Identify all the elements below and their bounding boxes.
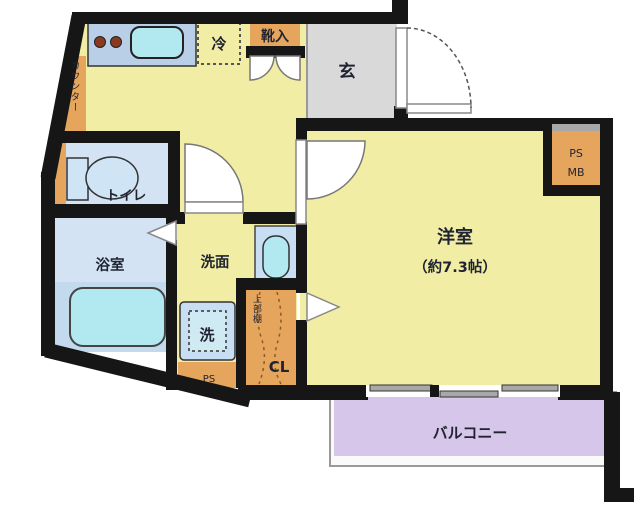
- sliding-window-pane: [502, 385, 558, 391]
- bathtub: [70, 288, 165, 346]
- entrance-label: 玄: [339, 61, 356, 82]
- washroom-label: 洗面: [201, 253, 230, 271]
- window-center-post: [430, 385, 439, 397]
- ps-mb-top-strip: [552, 124, 600, 131]
- wash-basin: [263, 236, 289, 278]
- kitchen-sink: [131, 27, 183, 58]
- entrance-door-leaf: [396, 28, 407, 108]
- toilet-label: トイレ: [106, 188, 147, 204]
- stove-burner-icon: [95, 37, 106, 48]
- counter-label: カウンター: [69, 60, 81, 113]
- washer-label: 洗: [199, 326, 214, 344]
- washroom-door-leaf: [185, 202, 243, 213]
- toilet-tank: [67, 158, 88, 200]
- western-room-label: 洋室: [437, 226, 473, 248]
- closet-label: CL: [269, 358, 290, 376]
- upper-shelf-label: 上部棚: [251, 294, 262, 324]
- stove-burner-icon: [111, 37, 122, 48]
- balcony-label: バルコニー: [433, 424, 508, 442]
- ps-label: PS: [569, 147, 583, 160]
- floor-plan: 洋室 （約7.3帖） 玄 冷 靴入 カウンター トイレ 浴室 洗面 洗 上部棚 …: [0, 0, 640, 517]
- sliding-window-pane: [370, 385, 432, 391]
- ps-bottom-label: PS: [203, 374, 215, 385]
- floor-plan-canvas: 洋室 （約7.3帖） 玄 冷 靴入 カウンター トイレ 浴室 洗面 洗 上部棚 …: [0, 0, 640, 517]
- bathroom-label: 浴室: [96, 256, 125, 274]
- entrance-door-swing-arc: [407, 28, 471, 108]
- mb-label: MB: [567, 166, 584, 179]
- shoe-box-label: 靴入: [261, 28, 289, 45]
- sliding-window-pane: [440, 391, 498, 397]
- entrance-door-open: [407, 104, 471, 113]
- western-room-size-label: （約7.3帖）: [413, 258, 497, 276]
- western-room-door-leaf: [296, 140, 306, 224]
- refrigerator-label: 冷: [211, 35, 226, 53]
